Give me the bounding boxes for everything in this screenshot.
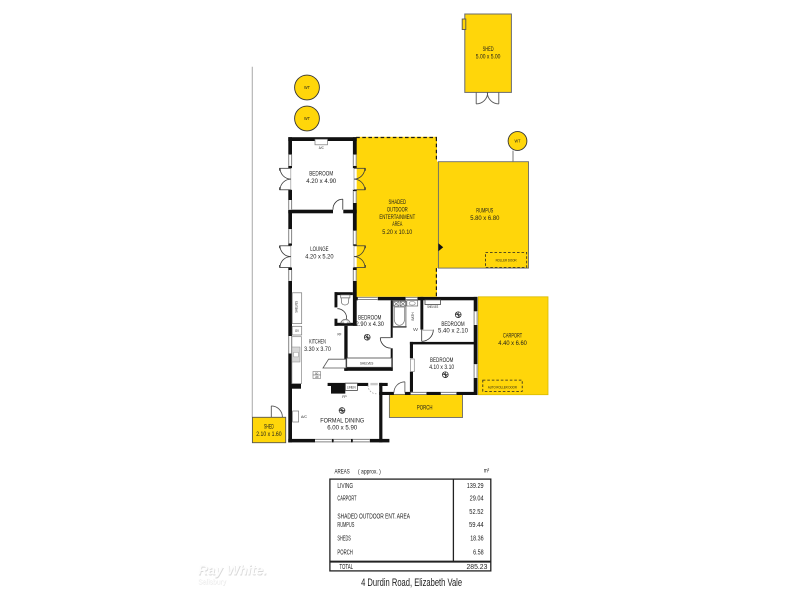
svg-text:ENTERTAINMENT: ENTERTAINMENT (379, 214, 415, 221)
svg-text:3.30 x 3.70: 3.30 x 3.70 (304, 346, 331, 353)
svg-text:ROLLER DOOR: ROLLER DOOR (496, 259, 517, 263)
svg-text:AREA: AREA (392, 221, 402, 228)
svg-text:W: W (413, 327, 419, 332)
svg-text:5.80 x 6.80: 5.80 x 6.80 (470, 215, 499, 222)
svg-text:6.00 x 5.90: 6.00 x 5.90 (327, 425, 357, 432)
svg-text:BEDROOM: BEDROOM (309, 170, 333, 177)
svg-text:RF: RF (338, 333, 342, 337)
svg-text:2.90 x 4.30: 2.90 x 4.30 (356, 321, 384, 328)
svg-text:4 Durdin Road, Elizabeth Vale: 4 Durdin Road, Elizabeth Vale (361, 577, 462, 589)
svg-text:TOTAL: TOTAL (339, 564, 353, 571)
svg-text:( approx. ): ( approx. ) (358, 469, 381, 476)
svg-text:SHELVES: SHELVES (294, 300, 298, 313)
svg-text:Salisbury: Salisbury (198, 577, 226, 586)
svg-text:SHADED: SHADED (389, 199, 407, 206)
svg-text:5.00 x 5.00: 5.00 x 5.00 (476, 54, 501, 61)
svg-text:RUMPUS: RUMPUS (337, 522, 354, 529)
svg-text:SHELVES: SHELVES (360, 362, 374, 366)
svg-text:BEDROOM: BEDROOM (430, 357, 454, 364)
svg-text:WT: WT (304, 116, 310, 121)
svg-text:A/C: A/C (301, 414, 307, 419)
svg-text:52.52: 52.52 (469, 509, 483, 516)
svg-text:4.20 x 4.90: 4.20 x 4.90 (306, 178, 336, 185)
svg-text:285.23: 285.23 (467, 564, 488, 571)
svg-text:5.40 x 2.10: 5.40 x 2.10 (438, 327, 468, 334)
svg-text:A/C: A/C (319, 146, 325, 150)
svg-text:AREAS: AREAS (335, 469, 351, 476)
svg-text:59.44: 59.44 (469, 522, 484, 529)
svg-text:KITCHEN: KITCHEN (309, 338, 326, 345)
svg-text:LDR: LDR (315, 376, 319, 379)
svg-text:4.40 x 6.60: 4.40 x 6.60 (498, 340, 527, 347)
svg-text:PORCH: PORCH (417, 404, 433, 411)
svg-text:SHED: SHED (483, 46, 494, 53)
svg-text:PORCH: PORCH (337, 550, 353, 557)
svg-text:SHADED OUTDOOR ENT. AREA: SHADED OUTDOOR ENT. AREA (337, 514, 410, 521)
svg-text:29.04: 29.04 (470, 496, 484, 503)
svg-text:SHELVES: SHELVES (427, 305, 439, 309)
svg-text:CARPORT: CARPORT (503, 333, 522, 340)
svg-text:SHEDS: SHEDS (337, 536, 351, 543)
svg-text:4.10 x 3.10: 4.10 x 3.10 (429, 364, 454, 371)
svg-text:4.20 x 5.20: 4.20 x 5.20 (305, 253, 333, 260)
svg-text:WT: WT (515, 139, 521, 144)
svg-text:SHED: SHED (264, 423, 274, 430)
svg-text:m²: m² (484, 469, 490, 475)
svg-text:FP: FP (342, 395, 347, 399)
svg-text:OUTDOOR: OUTDOOR (387, 207, 408, 214)
svg-text:2.10 x 1.60: 2.10 x 1.60 (256, 431, 281, 438)
svg-text:WT: WT (304, 85, 310, 90)
svg-text:6.58: 6.58 (473, 550, 484, 557)
svg-text:LOUNGE: LOUNGE (310, 246, 329, 253)
svg-text:FORMAL DINING: FORMAL DINING (320, 417, 364, 424)
svg-text:CARPORT: CARPORT (337, 496, 356, 503)
svg-text:Ray White.: Ray White. (198, 562, 267, 578)
svg-text:LIVING: LIVING (337, 483, 353, 490)
svg-text:RUMPUS: RUMPUS (476, 208, 493, 215)
svg-text:AUTO ROLLER DOOR: AUTO ROLLER DOOR (488, 385, 517, 389)
svg-text:BATH: BATH (411, 312, 415, 320)
svg-text:139.29: 139.29 (467, 483, 484, 490)
svg-text:5.20 x 10.10: 5.20 x 10.10 (382, 229, 412, 236)
svg-text:LINEN: LINEN (347, 385, 356, 389)
svg-text:18.36: 18.36 (470, 536, 483, 543)
